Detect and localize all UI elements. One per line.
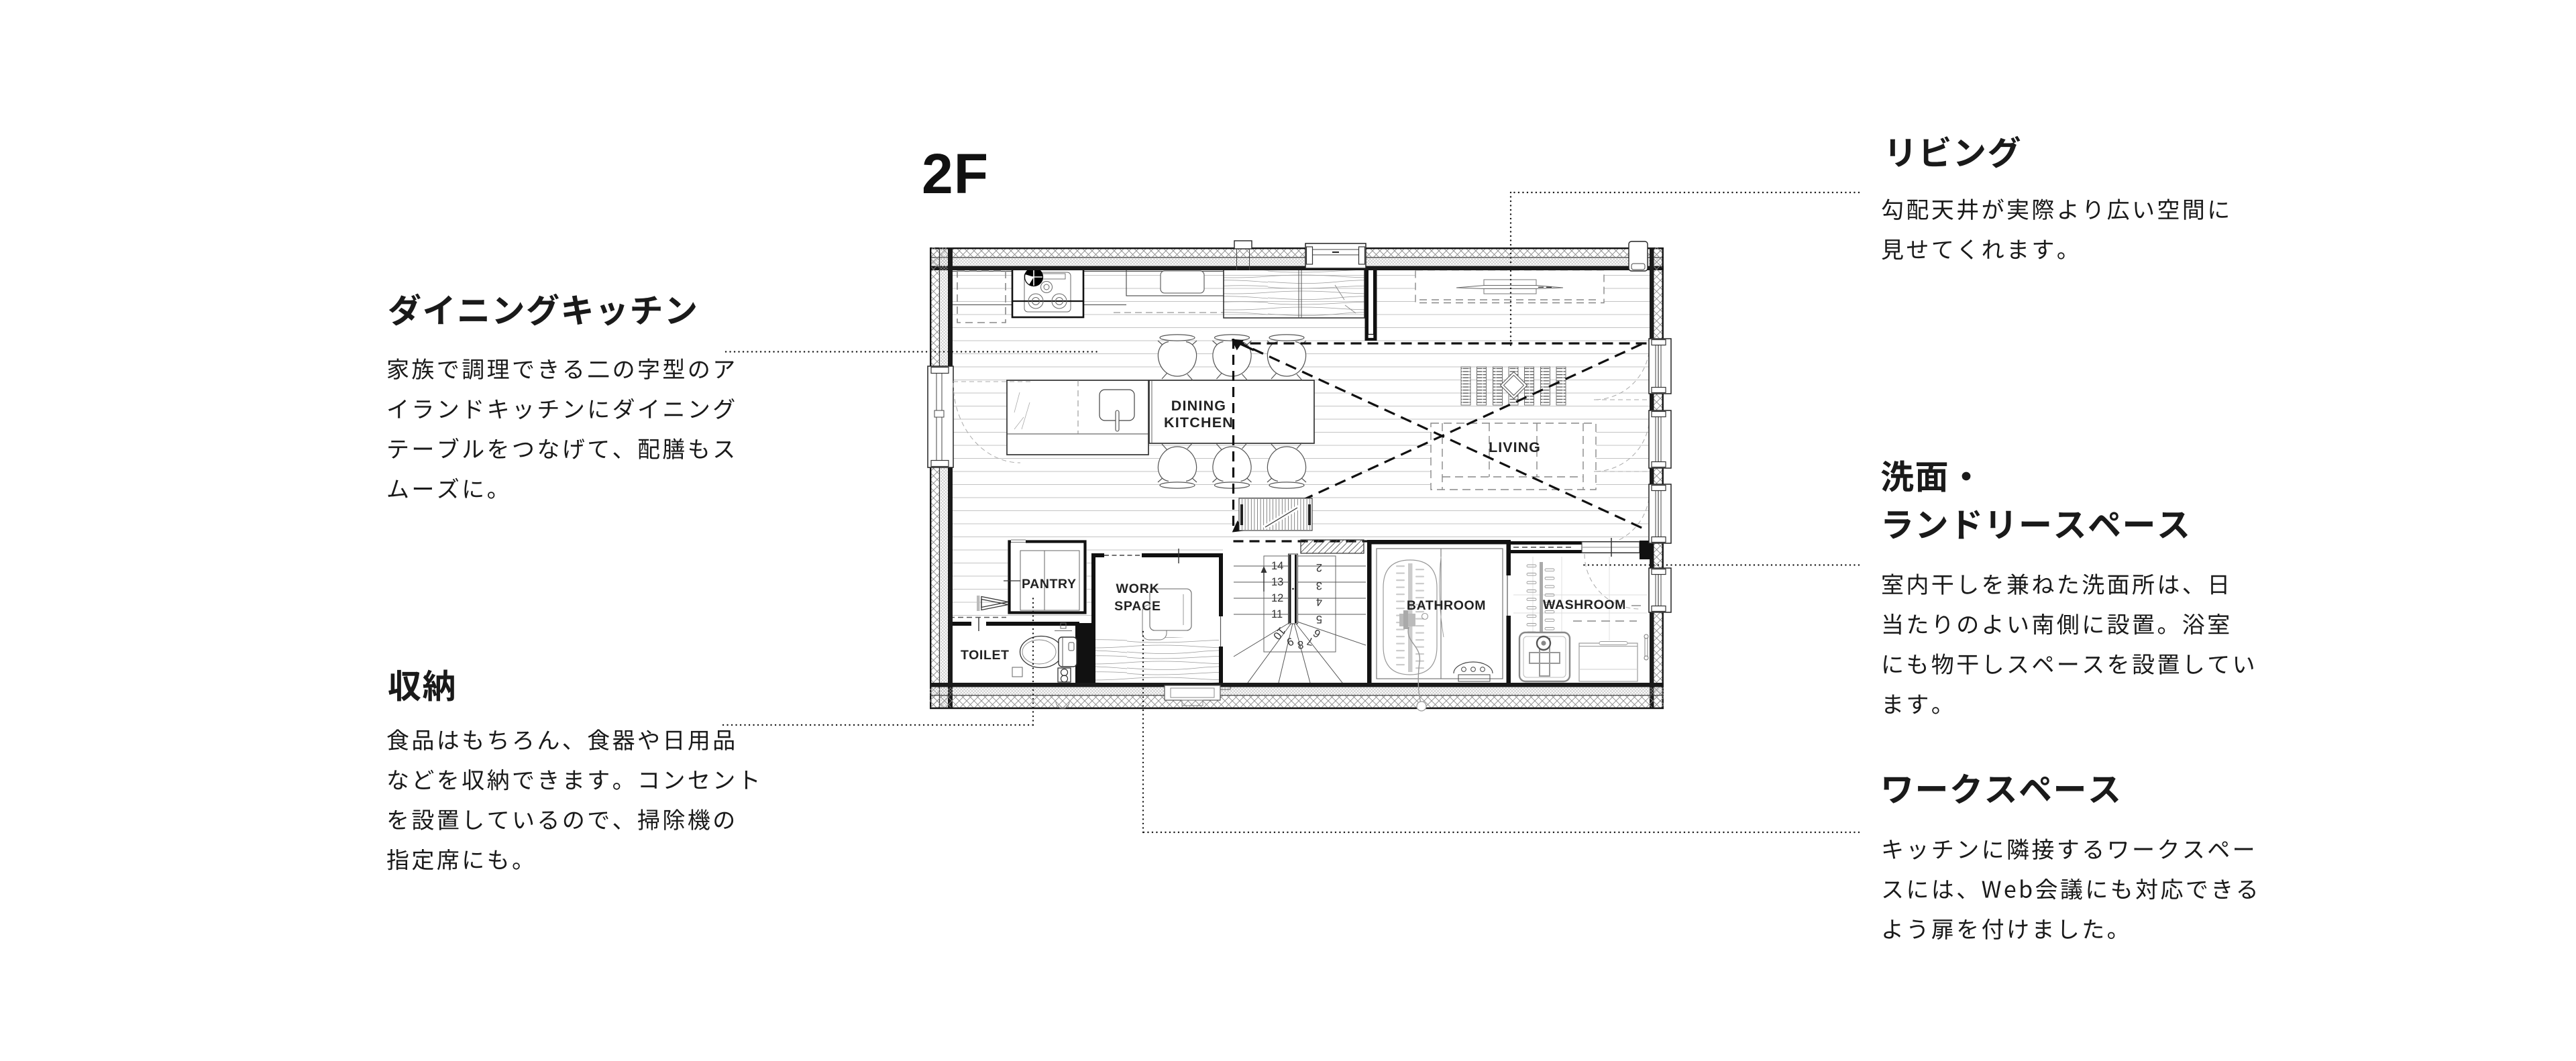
svg-text:3: 3 bbox=[1316, 579, 1322, 592]
svg-text:PANTRY: PANTRY bbox=[1022, 577, 1077, 592]
svg-text:2F: 2F bbox=[922, 142, 989, 205]
svg-text:WORK: WORK bbox=[1116, 581, 1160, 596]
svg-text:SPACE: SPACE bbox=[1114, 599, 1161, 614]
svg-text:13: 13 bbox=[1271, 576, 1283, 588]
svg-text:14: 14 bbox=[1271, 560, 1283, 572]
svg-text:WASHROOM: WASHROOM bbox=[1543, 598, 1626, 612]
svg-text:2: 2 bbox=[1316, 561, 1322, 573]
svg-text:KITCHEN: KITCHEN bbox=[1164, 414, 1234, 431]
svg-text:4: 4 bbox=[1316, 596, 1322, 608]
svg-text:BATHROOM: BATHROOM bbox=[1407, 598, 1486, 613]
svg-text:LIVING: LIVING bbox=[1489, 439, 1541, 455]
svg-text:12: 12 bbox=[1271, 592, 1283, 604]
svg-text:TOILET: TOILET bbox=[961, 648, 1010, 663]
svg-text:5: 5 bbox=[1316, 613, 1322, 625]
svg-text:DINING: DINING bbox=[1171, 398, 1226, 414]
svg-text:11: 11 bbox=[1271, 608, 1283, 620]
